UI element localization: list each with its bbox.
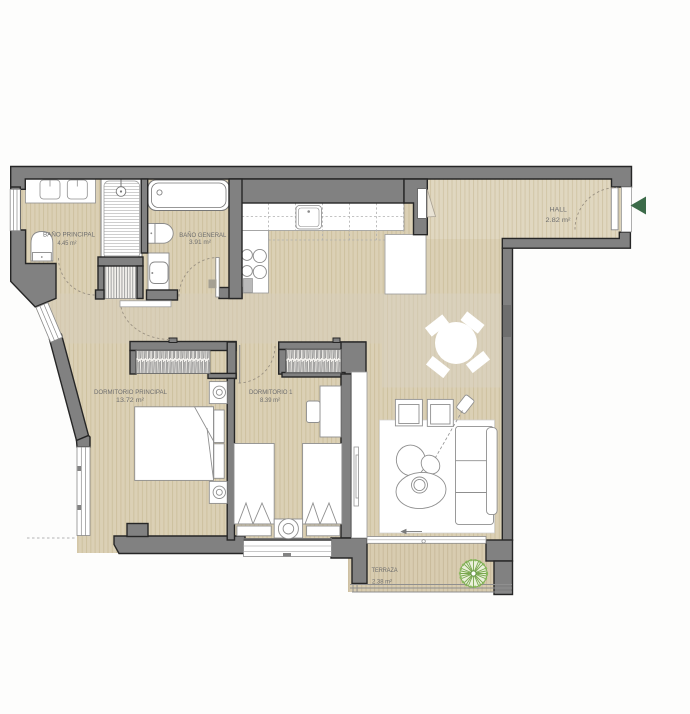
svg-text:TERRAZA: TERRAZA: [372, 567, 398, 574]
svg-text:13.72 m²: 13.72 m²: [116, 397, 144, 404]
svg-text:DORMITORIO PRINCIPAL: DORMITORIO PRINCIPAL: [94, 389, 167, 396]
svg-text:HALL: HALL: [550, 207, 568, 214]
svg-text:3.91 m²: 3.91 m²: [189, 239, 211, 246]
svg-text:8.39 m²: 8.39 m²: [260, 397, 280, 404]
svg-text:DORMITORIO 1: DORMITORIO 1: [249, 389, 293, 396]
svg-text:2.82 m²: 2.82 m²: [546, 217, 571, 224]
svg-text:2.38 m²: 2.38 m²: [372, 579, 392, 586]
svg-text:BAÑO GENERAL: BAÑO GENERAL: [179, 230, 226, 239]
svg-text:BAÑO PRINCIPAL: BAÑO PRINCIPAL: [43, 230, 95, 239]
svg-text:4.45 m²: 4.45 m²: [58, 240, 77, 247]
